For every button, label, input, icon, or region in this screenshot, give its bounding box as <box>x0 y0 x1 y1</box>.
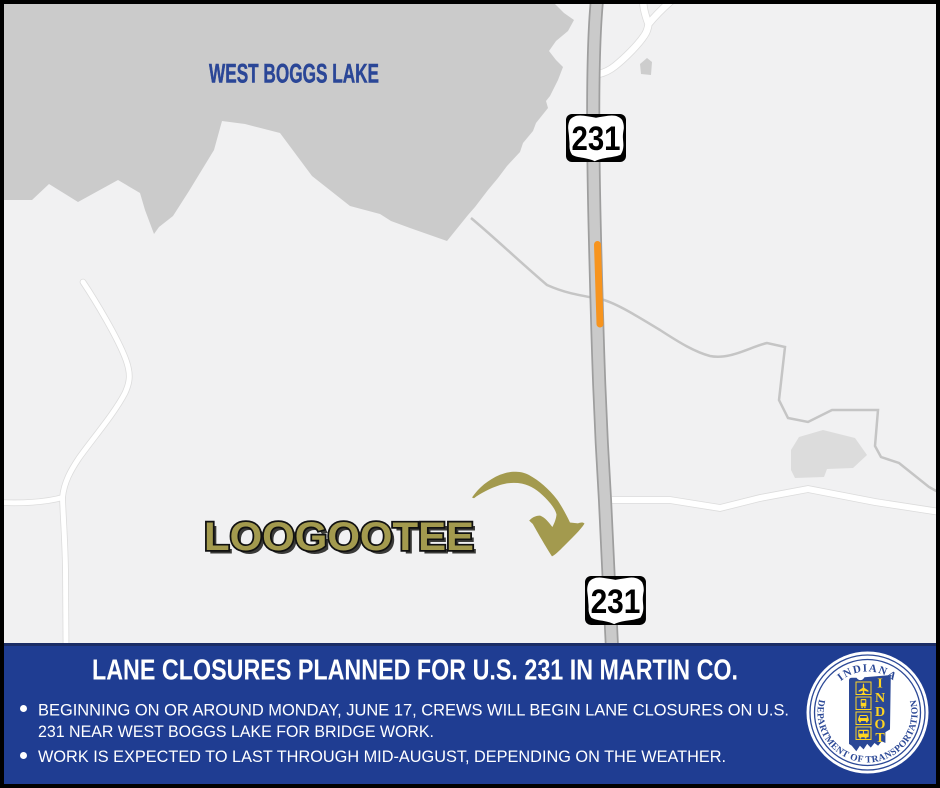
svg-text:I: I <box>877 677 882 692</box>
svg-text:BEGINNING ON OR AROUND MONDAY,: BEGINNING ON OR AROUND MONDAY, JUNE 17, … <box>38 701 789 720</box>
svg-text:WORK IS EXPECTED TO LAST THROU: WORK IS EXPECTED TO LAST THROUGH MID-AUG… <box>38 747 726 766</box>
svg-text:T: T <box>875 731 885 746</box>
svg-text:LOOGOOTEE: LOOGOOTEE <box>204 515 474 559</box>
svg-text:231: 231 <box>591 583 641 621</box>
svg-text:LANE CLOSURES PLANNED FOR U.S.: LANE CLOSURES PLANNED FOR U.S. 231 IN MA… <box>92 655 738 687</box>
svg-text:231 NEAR WEST BOGGS LAKE FOR B: 231 NEAR WEST BOGGS LAKE FOR BRIDGE WORK… <box>38 722 434 741</box>
svg-text:231: 231 <box>572 120 621 158</box>
svg-text:WEST BOGGS LAKE: WEST BOGGS LAKE <box>209 59 379 89</box>
